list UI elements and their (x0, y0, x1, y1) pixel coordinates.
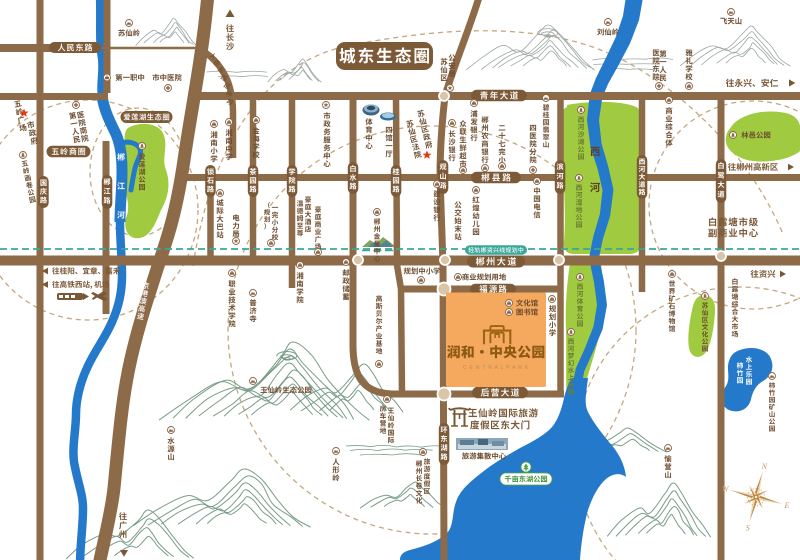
svg-text:C E N T R A L P A R K: C E N T R A L P A R K (463, 365, 529, 371)
svg-text:S: S (746, 524, 750, 533)
svg-text:N: N (761, 462, 768, 471)
svg-text:E: E (783, 501, 789, 510)
